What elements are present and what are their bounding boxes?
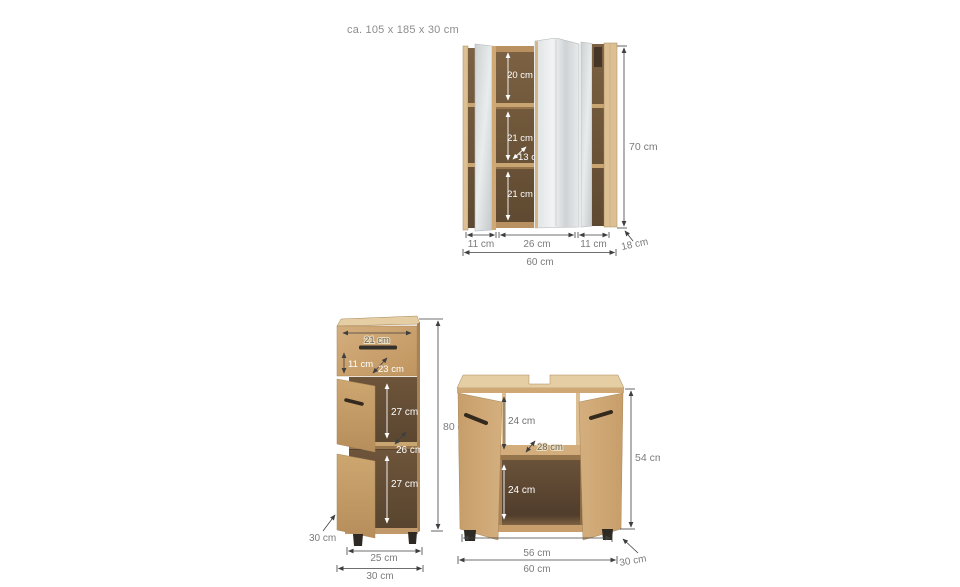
dim-lower-compartment: 24 cm (508, 485, 535, 496)
mirror-cabinet-right-door (581, 42, 592, 227)
dim-drawer-depth: 23 cm (378, 364, 404, 375)
dim-height: 54 cm (635, 452, 660, 464)
dim-total-width: 30 cm (366, 571, 393, 582)
base-cabinet-foot-right (408, 532, 417, 544)
dim-section-left-width: 11 cm (468, 239, 495, 250)
mirror-cabinet-diagram: 20 cm 21 cm 13 cm 21 cm (440, 38, 670, 270)
dim-depth: 30 cm (309, 533, 336, 544)
dim-total-width: 60 cm (526, 257, 553, 268)
dim-upper-opening: 24 cm (508, 416, 535, 427)
mirror-cabinet-left-carcass (463, 46, 475, 230)
dim-section-center-width: 26 cm (523, 239, 550, 250)
dim-depth: 30 cm (619, 553, 648, 569)
base-cabinet-lower-door (337, 454, 375, 538)
dim-inner-depth: 28 cm (537, 442, 563, 453)
dim-compartment-middle: 21 cm (507, 133, 533, 144)
vanity-cabinet-body (457, 375, 624, 541)
mirror-cabinet-open-door (535, 38, 579, 228)
dim-height: 70 cm (629, 141, 658, 153)
dim-inner-depth: 26 cm (396, 445, 423, 456)
base-cabinet-body (337, 316, 420, 546)
dim-compartment-top: 20 cm (507, 70, 533, 81)
dim-section-right-width: 11 cm (580, 239, 607, 250)
dim-upper-compartment: 27 cm (391, 407, 418, 418)
mirror-cabinet-right-carcass (592, 43, 617, 227)
base-cabinet-upper-door (337, 379, 375, 452)
dim-inner-width: 25 cm (370, 553, 397, 564)
vanity-foot-left (464, 530, 476, 541)
vanity-cabinet-diagram: 24 cm 28 cm 24 cm 54 cm 56 cm 60 cm 30 c… (450, 360, 660, 587)
product-dimension-diagram: ca. 105 x 185 x 30 cm (0, 0, 960, 587)
dim-drawer-height: 11 cm (348, 359, 373, 370)
mirror-cabinet-left-door (475, 44, 496, 231)
drawer-handle (359, 346, 397, 350)
vanity-top-with-sink-cutout (457, 375, 624, 388)
dim-drawer-width: 21 cm (364, 335, 390, 346)
dim-compartment-bottom: 21 cm (507, 189, 533, 200)
base-cabinet-diagram: 21 cm 11 cm 23 cm 27 cm 26 cm 27 cm 80 c… (305, 300, 470, 587)
dim-total-width: 60 cm (523, 564, 550, 575)
dim-lower-compartment: 27 cm (391, 479, 418, 490)
dim-inner-width: 56 cm (523, 548, 550, 559)
dim-depth: 18 cm (620, 237, 649, 253)
base-cabinet-foot-left (353, 534, 363, 546)
overall-dimensions-text: ca. 105 x 185 x 30 cm (347, 24, 459, 36)
